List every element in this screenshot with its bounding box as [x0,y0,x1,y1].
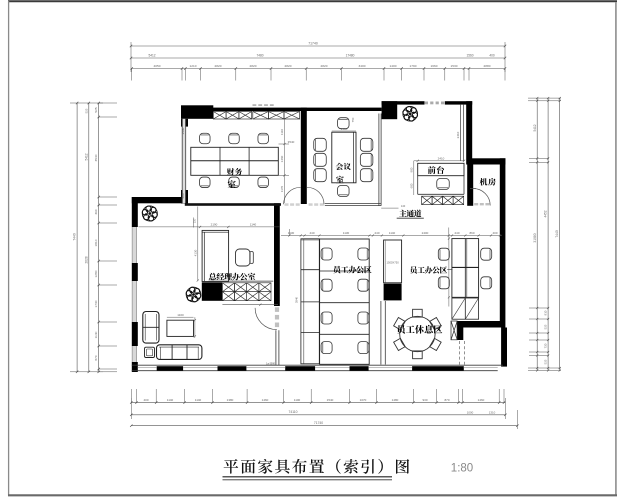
svg-text:110: 110 [193,218,197,223]
svg-text:440: 440 [309,231,314,235]
svg-text:1460: 1460 [478,398,485,402]
svg-text:17480: 17480 [346,54,355,58]
svg-text:1310: 1310 [489,410,496,414]
svg-text:1810: 1810 [94,239,98,246]
svg-text:3540: 3540 [94,154,98,161]
svg-text:1500X750: 1500X750 [386,261,399,265]
svg-text:1170: 1170 [280,185,284,192]
svg-text:1140: 1140 [389,231,396,235]
svg-text:2820: 2820 [215,64,222,68]
svg-text:870: 870 [444,398,449,402]
svg-text:140: 140 [401,204,406,208]
svg-text:810: 810 [543,310,547,315]
svg-text:1560: 1560 [466,54,473,58]
svg-text:240: 240 [374,231,379,235]
svg-text:2410: 2410 [438,156,445,160]
svg-text:1460: 1460 [262,398,269,402]
svg-text:71740: 71740 [314,421,323,425]
svg-text:930: 930 [422,398,427,402]
svg-text:360: 360 [94,209,98,214]
svg-text:1380: 1380 [227,398,234,402]
svg-text:870: 870 [94,355,98,360]
svg-text:74110: 74110 [289,410,298,414]
svg-text:2880: 2880 [484,64,491,68]
svg-text:2400: 2400 [181,127,185,134]
svg-text:2190: 2190 [211,222,218,226]
svg-text:1130: 1130 [343,231,350,235]
svg-text:3400: 3400 [359,64,366,68]
svg-text:2410: 2410 [456,131,460,138]
svg-text:1140: 1140 [167,398,174,402]
svg-text:400: 400 [143,398,148,402]
svg-text:1140: 1140 [94,331,98,338]
svg-text:4050: 4050 [154,64,161,68]
svg-text:5412: 5412 [84,153,88,160]
svg-text:3940: 3940 [295,296,299,303]
svg-text:1660: 1660 [431,64,438,68]
svg-text:2820: 2820 [285,64,292,68]
svg-text:3540: 3540 [288,140,295,144]
svg-text:525: 525 [94,107,98,112]
svg-text:7440: 7440 [73,233,77,241]
svg-text:900: 900 [409,167,413,172]
svg-text:5412: 5412 [148,54,155,58]
svg-text:4130: 4130 [193,249,197,256]
svg-text:400: 400 [489,54,495,58]
svg-text:1140: 1140 [195,398,202,402]
svg-text:860: 860 [469,231,474,235]
svg-text:1070: 1070 [360,398,367,402]
svg-text:1790: 1790 [410,64,417,68]
svg-text:1530: 1530 [451,64,458,68]
svg-text:1400: 1400 [390,64,397,68]
svg-text:7480: 7480 [256,54,263,58]
svg-text:1130: 1130 [288,231,295,235]
svg-text:1140: 1140 [250,222,257,226]
svg-text:525: 525 [543,324,547,329]
svg-text:2028: 2028 [84,256,88,263]
svg-text:1110: 1110 [280,129,284,136]
svg-text:525: 525 [543,359,547,364]
svg-text:1540: 1540 [327,398,334,402]
svg-text:4452: 4452 [543,210,547,217]
svg-text:1:80: 1:80 [451,463,473,475]
svg-text:1210: 1210 [190,64,197,68]
svg-text:2400: 2400 [341,127,348,131]
svg-text:600: 600 [409,183,413,188]
svg-text:400: 400 [492,231,497,235]
svg-text:7440: 7440 [555,230,559,238]
svg-text:5412: 5412 [533,124,537,131]
svg-text:2820: 2820 [321,64,328,68]
svg-text:1460: 1460 [280,155,284,162]
svg-text:2820: 2820 [250,64,257,68]
svg-text:1000: 1000 [467,410,474,414]
svg-text:525: 525 [84,108,88,113]
svg-text:720: 720 [543,343,547,348]
svg-text:600: 600 [181,193,185,198]
svg-text:1730: 1730 [94,300,98,307]
svg-text:750: 750 [351,117,355,122]
svg-text:1480: 1480 [392,398,399,402]
svg-text:2400: 2400 [422,231,429,235]
svg-text:71740: 71740 [308,42,318,46]
svg-text:240: 240 [454,231,459,235]
svg-text:1280: 1280 [94,270,98,277]
svg-text:1100: 1100 [294,398,301,402]
svg-text:31980: 31980 [533,233,537,242]
svg-text:1160: 1160 [177,313,184,317]
